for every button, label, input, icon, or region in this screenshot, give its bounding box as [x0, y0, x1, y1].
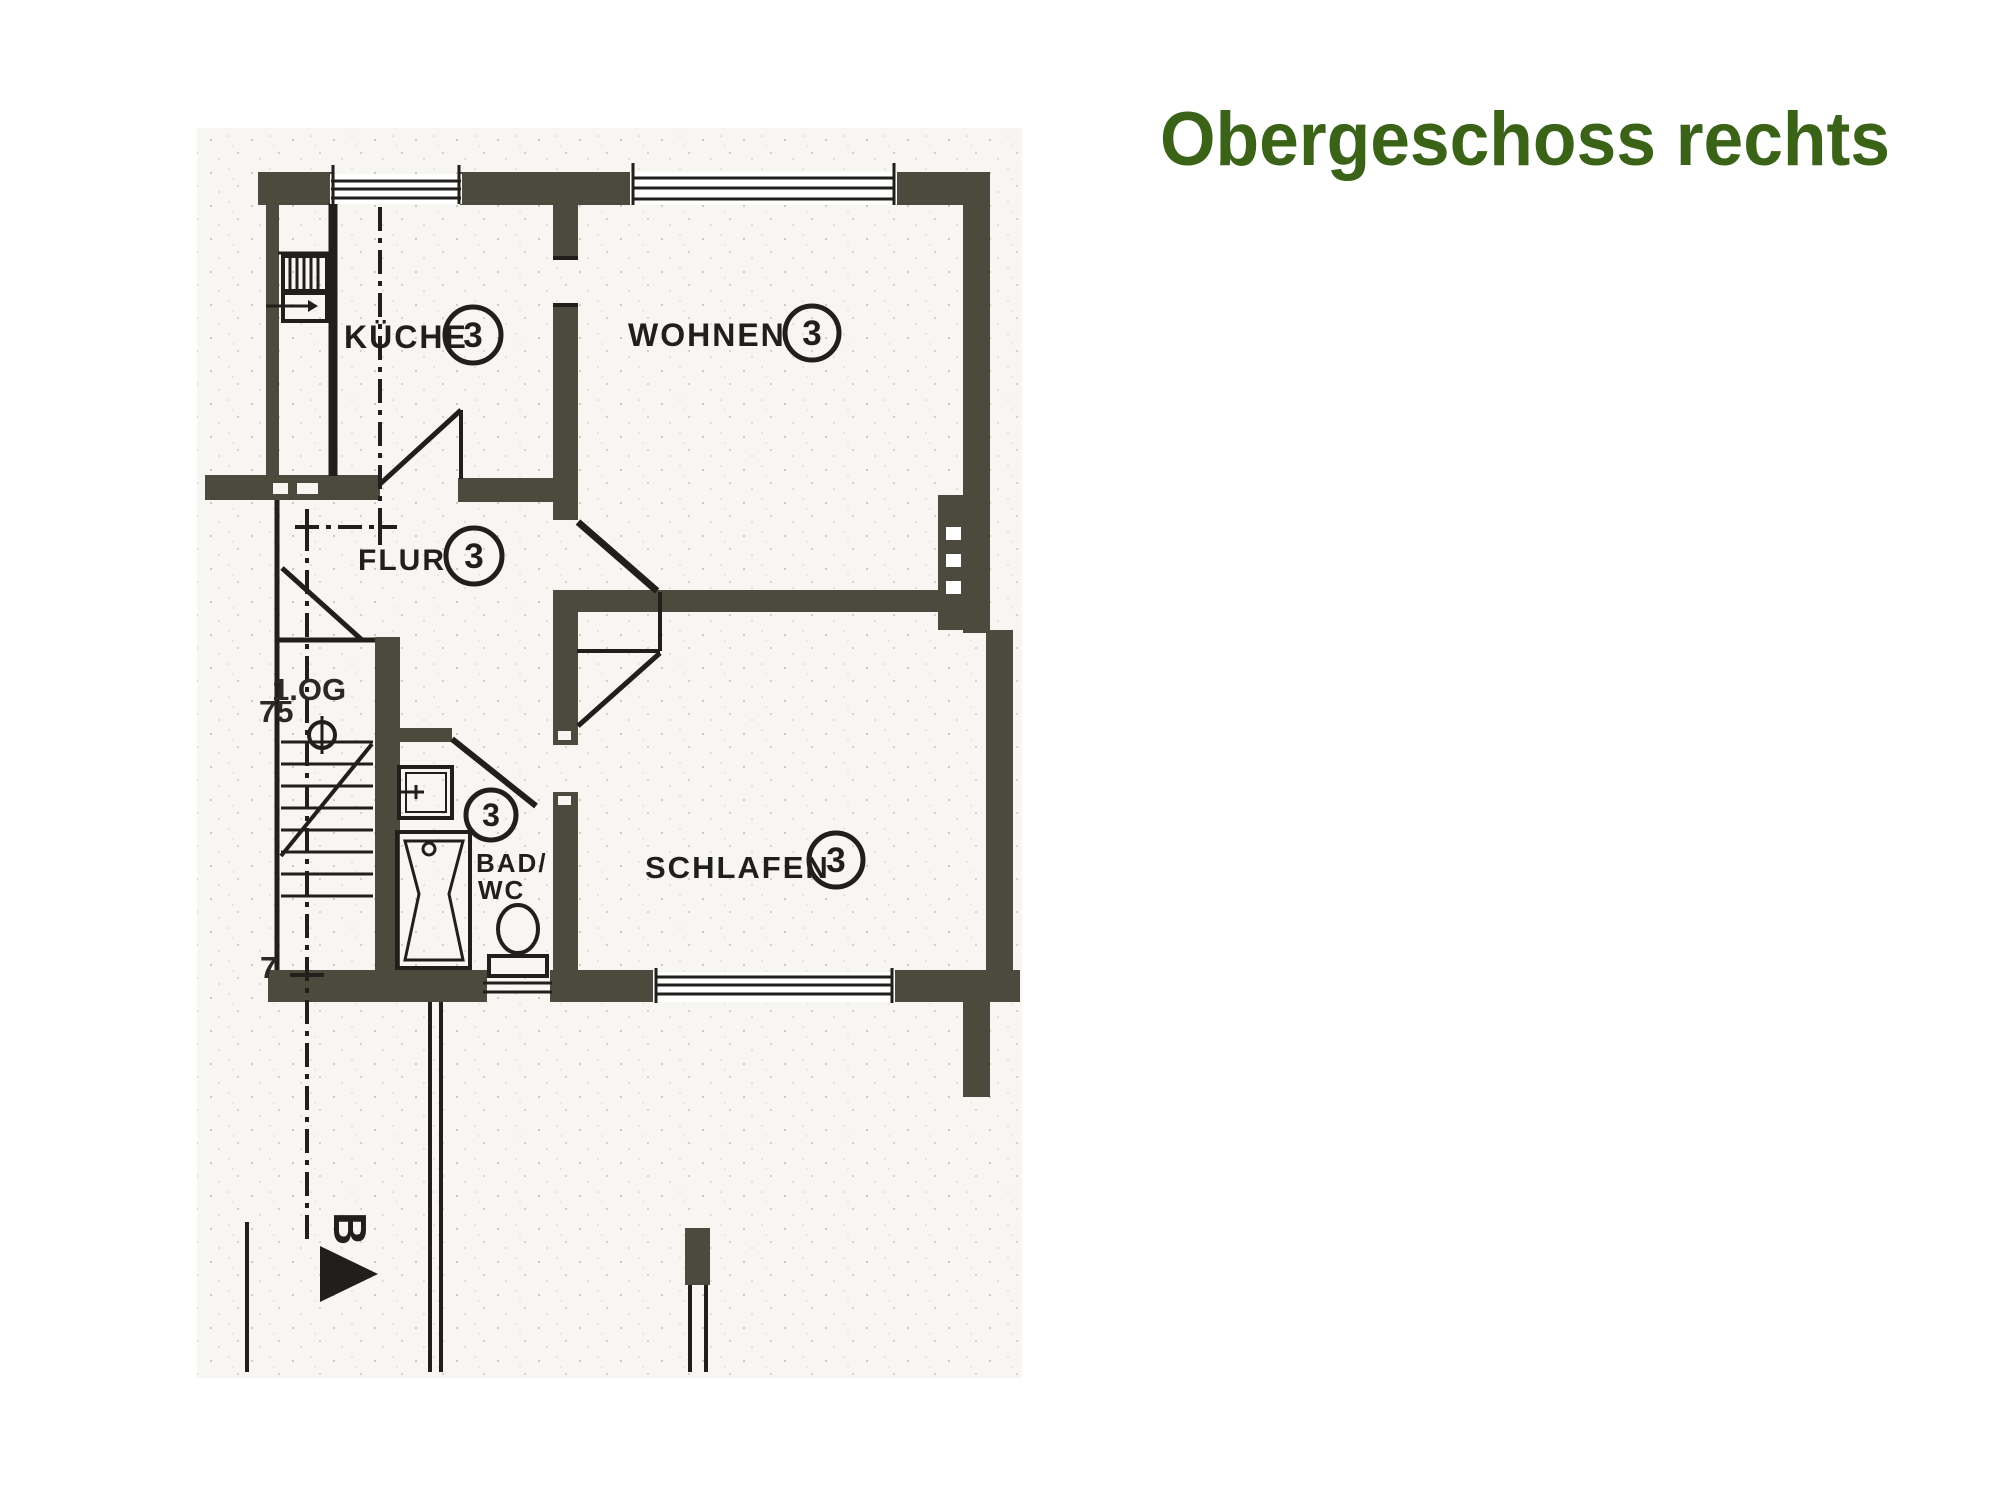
- label-wohnen: WOHNEN: [628, 317, 786, 353]
- dim-7-text: 7: [260, 950, 277, 985]
- label-schlafen: SCHLAFEN: [645, 850, 830, 885]
- section-letter: B: [324, 1212, 376, 1245]
- label-flur: FLUR: [358, 544, 446, 577]
- wall-right-stub-below: [963, 1002, 990, 1097]
- schlafen-door-jamb-1: [558, 731, 571, 740]
- wall-left-outer: [266, 177, 279, 500]
- floor-plan-drawing: B KÜCHE 3 WOHNEN 3 FLUR 3 3 BAD/ WC SCHL…: [0, 0, 2000, 1500]
- wall-bad-north: [398, 728, 452, 742]
- badge-wohnen: 3: [802, 314, 821, 353]
- wall-lower-stub: [685, 1228, 710, 1285]
- badge-kueche: 3: [463, 316, 482, 355]
- wall-flur-north: [205, 475, 380, 500]
- label-bad-line1: BAD/: [476, 848, 548, 878]
- jamb-white-2: [297, 483, 318, 494]
- screenshot-root: B KÜCHE 3 WOHNEN 3 FLUR 3 3 BAD/ WC SCHL…: [0, 0, 2000, 1500]
- label-bad-line2: WC: [478, 875, 525, 905]
- schlafen-door-jamb-2: [558, 796, 571, 805]
- wall-kueche-wohnen-lower: [553, 305, 578, 520]
- jamb-white-1: [273, 483, 288, 494]
- wall-flur-north-stub: [458, 478, 553, 502]
- toilet-icon: [498, 905, 538, 953]
- wall-kueche-wohnen-upper: [553, 175, 578, 258]
- flue-vent-1: [946, 527, 961, 540]
- flue-vent-2: [946, 554, 961, 567]
- badge-schlafen: 3: [826, 841, 845, 880]
- badge-flur: 3: [464, 537, 483, 576]
- wall-schlafen-west-upper: [553, 590, 578, 727]
- wall-right-lower: [986, 630, 1013, 1002]
- wall-wohnen-schlafen: [577, 590, 938, 612]
- page-title: Obergeschoss rechts: [1160, 97, 1890, 182]
- dim-75-text: 75: [259, 694, 293, 729]
- wall-bottom-mid: [550, 970, 653, 1002]
- wall-top-pier: [460, 172, 632, 205]
- wall-right-upper: [963, 172, 990, 633]
- badge-bad: 3: [482, 797, 500, 833]
- flue-vent-3: [946, 581, 961, 594]
- wall-bottom-right: [895, 970, 1020, 1002]
